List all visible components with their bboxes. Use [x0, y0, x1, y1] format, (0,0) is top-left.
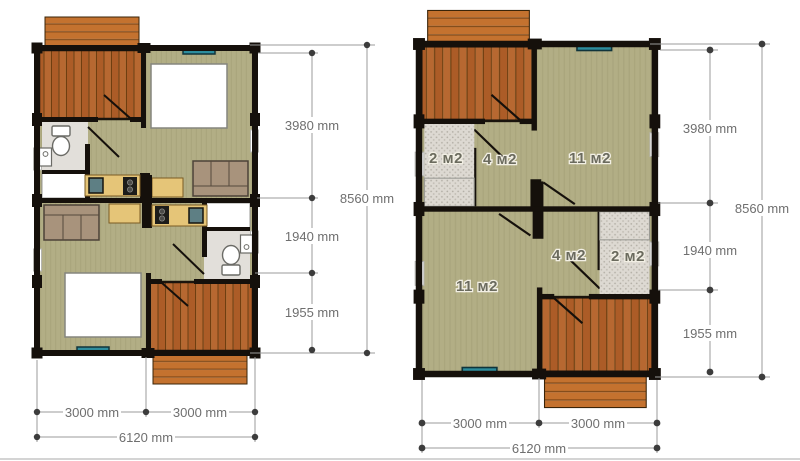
floor-plans-figure: 3980 mm 1940 mm 1955 mm 8560 mm 3000 mm …	[0, 0, 800, 461]
right-dim-1940: 1940 mm	[683, 243, 737, 258]
right-dim-1955: 1955 mm	[683, 326, 737, 341]
right-bottom-closet-stipple	[600, 212, 650, 240]
right-dim-3000-right: 3000 mm	[571, 416, 625, 431]
floor-plans-svg: 3980 mm 1940 mm 1955 mm 8560 mm 3000 mm …	[0, 0, 800, 461]
right-dim-3000-left: 3000 mm	[453, 416, 507, 431]
right-top-closet-stipple	[424, 178, 474, 206]
right-dim-3980: 3980 mm	[683, 121, 737, 136]
room-label-top-room: 11 м2	[569, 150, 611, 167]
room-label-top-bath: 2 м2	[429, 150, 463, 167]
room-label-bottom-room: 11 м2	[456, 278, 498, 295]
room-label-bottom-bath: 2 м2	[611, 248, 645, 265]
left-dim-1955: 1955 mm	[285, 305, 339, 320]
room-label-top-hall: 4 м2	[483, 151, 517, 168]
left-dim-1940: 1940 mm	[285, 229, 339, 244]
left-dim-8560: 8560 mm	[340, 191, 394, 206]
left-dim-6120: 6120 mm	[119, 430, 173, 445]
left-floor-plan	[32, 17, 261, 384]
right-dim-6120: 6120 mm	[512, 441, 566, 456]
left-dim-3000-right: 3000 mm	[173, 405, 227, 420]
left-dim-3980: 3980 mm	[285, 118, 339, 133]
right-dim-8560: 8560 mm	[735, 201, 789, 216]
right-floor-plan	[413, 10, 661, 407]
room-label-bottom-hall: 4 м2	[552, 247, 586, 264]
left-dim-3000-left: 3000 mm	[65, 405, 119, 420]
